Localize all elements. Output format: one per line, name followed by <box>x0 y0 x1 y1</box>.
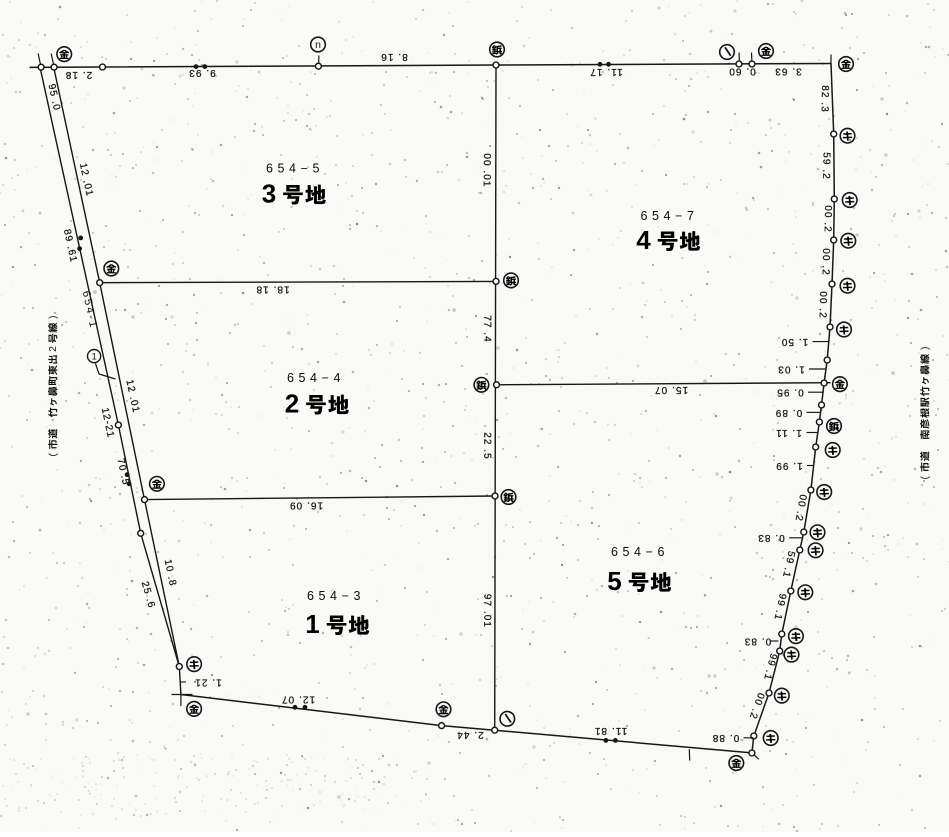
svg-text:00 .2: 00 .2 <box>817 291 828 319</box>
svg-text:12. 07: 12. 07 <box>281 693 315 704</box>
svg-text:1. 50: 1. 50 <box>781 336 809 347</box>
svg-text:9. 93: 9. 93 <box>188 67 216 78</box>
svg-text:): ) <box>920 346 931 349</box>
svg-text:0. 83: 0. 83 <box>757 532 785 543</box>
svg-text:0. 89: 0. 89 <box>775 407 803 418</box>
svg-text:0. 83: 0. 83 <box>744 635 772 646</box>
svg-text:654−3: 654−3 <box>307 589 365 603</box>
svg-text:2: 2 <box>48 346 59 352</box>
svg-text:00 .2: 00 .2 <box>822 205 833 233</box>
svg-text:1: 1 <box>305 609 319 639</box>
svg-text:654−7: 654−7 <box>640 209 698 223</box>
svg-text:2: 2 <box>285 389 299 419</box>
svg-text:): ) <box>48 315 59 318</box>
svg-text:n: n <box>315 39 321 51</box>
svg-text:82 .3: 82 .3 <box>819 85 830 113</box>
svg-text:22 .5: 22 .5 <box>481 432 492 460</box>
svg-text:00 .01: 00 .01 <box>481 153 492 187</box>
svg-text:2. 18: 2. 18 <box>65 69 93 80</box>
svg-text:654−6: 654−6 <box>611 545 669 559</box>
svg-text:0. 60: 0. 60 <box>728 65 756 76</box>
svg-text:3. 63: 3. 63 <box>774 65 802 76</box>
svg-text:(: ( <box>48 453 59 457</box>
svg-text:0. 95: 0. 95 <box>776 387 804 398</box>
svg-text:(: ( <box>920 476 931 480</box>
svg-text:654−5: 654−5 <box>266 162 324 176</box>
svg-text:15. 07: 15. 07 <box>654 384 688 395</box>
svg-text:3: 3 <box>262 179 276 209</box>
svg-text:59 .2: 59 .2 <box>820 152 831 180</box>
svg-text:0. 88: 0. 88 <box>712 732 740 743</box>
svg-text:1. 11: 1. 11 <box>775 427 802 438</box>
svg-text:77 .4: 77 .4 <box>481 315 492 343</box>
svg-text:2. 44: 2. 44 <box>456 729 484 740</box>
svg-text:1: 1 <box>91 352 96 363</box>
svg-text:18. 18: 18. 18 <box>255 283 289 294</box>
svg-text:97 .01: 97 .01 <box>481 594 492 628</box>
svg-text:1. 21: 1. 21 <box>194 676 222 687</box>
svg-text:5: 5 <box>607 566 621 596</box>
svg-text:8. 16: 8. 16 <box>380 51 408 62</box>
svg-text:4: 4 <box>636 225 651 255</box>
svg-text:1. 03: 1. 03 <box>777 363 805 374</box>
svg-text:11. 17: 11. 17 <box>589 66 622 77</box>
svg-text:16. 09: 16. 09 <box>289 499 323 510</box>
svg-text:00 .2: 00 .2 <box>820 248 831 276</box>
svg-text:1. 99: 1. 99 <box>775 460 803 471</box>
svg-text:654−4: 654−4 <box>287 371 345 385</box>
svg-text:11. 81: 11. 81 <box>594 725 627 736</box>
